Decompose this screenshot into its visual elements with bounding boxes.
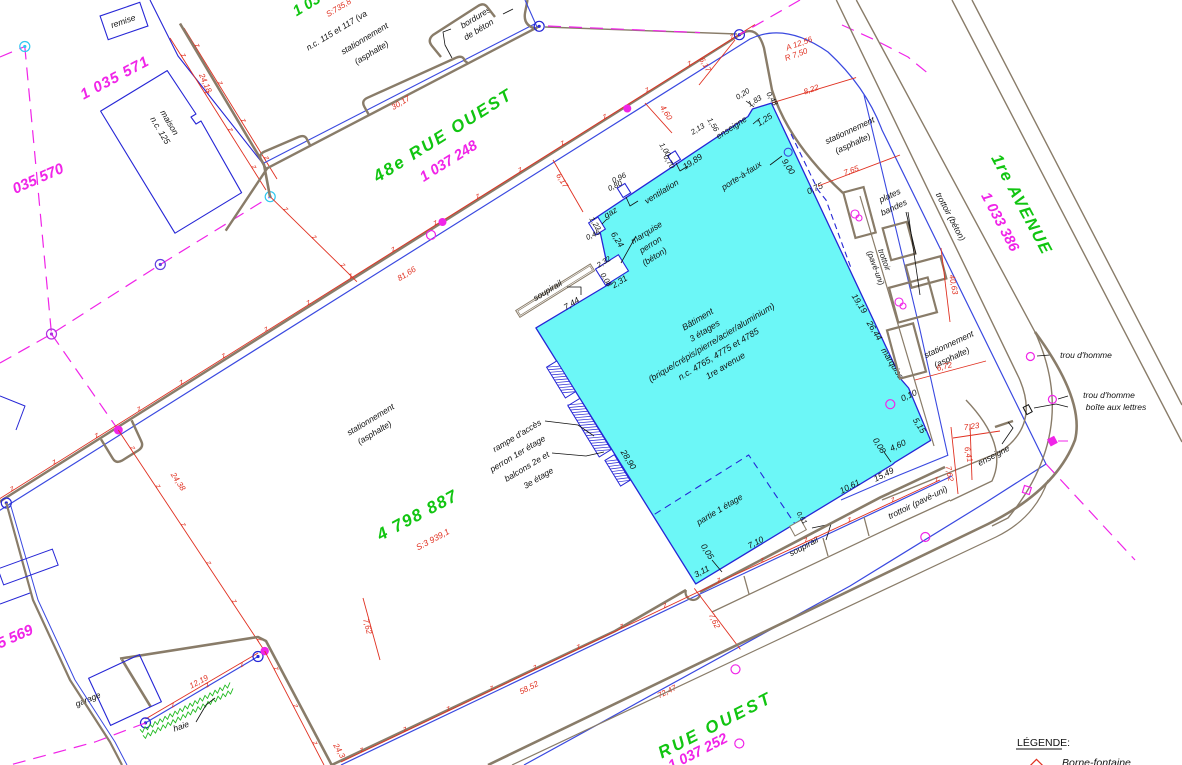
svg-text:boîte aux lettres: boîte aux lettres <box>1086 402 1147 412</box>
svg-text:Borne-fontaine: Borne-fontaine <box>1062 757 1131 765</box>
svg-text:trou d'homme: trou d'homme <box>1060 350 1112 360</box>
svg-text:LÉGENDE:: LÉGENDE: <box>1017 736 1070 749</box>
svg-text:trou d'homme: trou d'homme <box>1083 390 1135 400</box>
